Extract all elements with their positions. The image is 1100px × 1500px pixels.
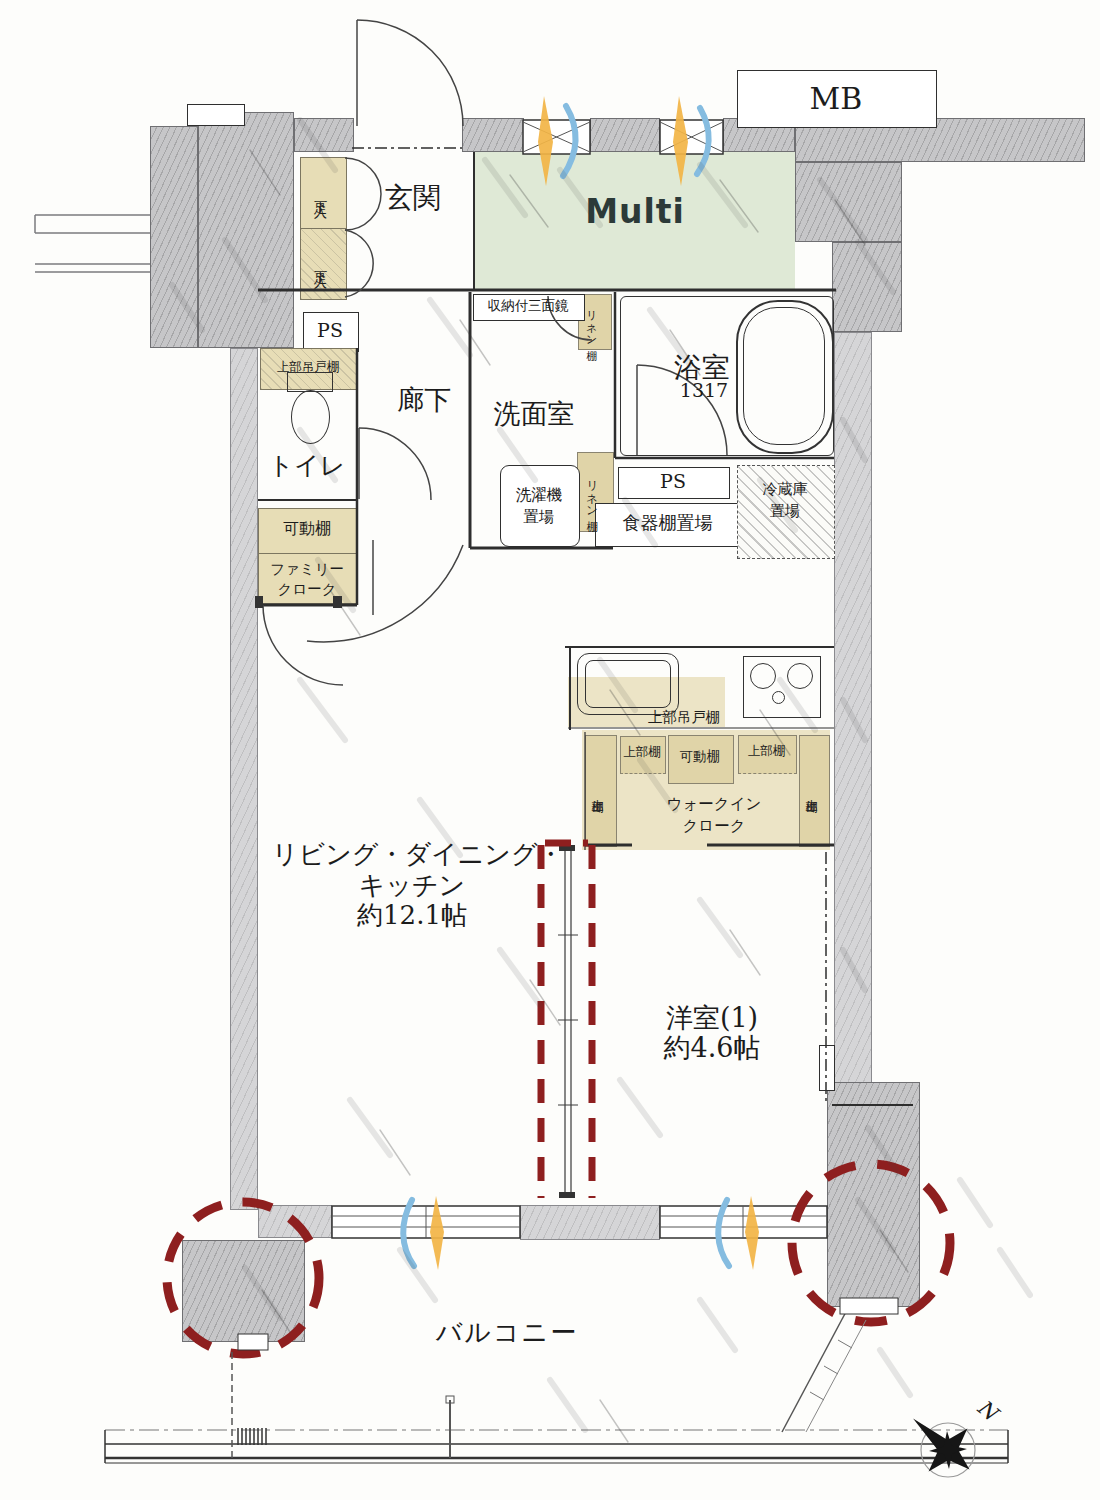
wall-left-lower — [230, 348, 258, 1210]
wall-left-upper — [198, 112, 294, 348]
label-shoe-lower: 下足入 — [312, 233, 327, 295]
toilet-bowl — [291, 390, 330, 444]
stove-burner-right — [787, 663, 813, 689]
compass-north-label: N — [968, 1391, 1006, 1429]
room-label-ldk-3: 約12.1帖 — [272, 901, 552, 931]
wall-column-narrow — [832, 242, 902, 332]
toilet-tank — [287, 372, 333, 392]
wall-bottom-mid-seg — [520, 1205, 660, 1240]
wall-top-entrance — [294, 118, 354, 152]
room-label-washroom: 洗面室 — [464, 398, 604, 429]
label-laundry-1: 洗濯機 — [500, 487, 578, 505]
room-label-ldk-1: リビング・ダイニング・ — [272, 840, 552, 870]
pillar-bottom-left — [182, 1240, 305, 1342]
wall-bottom-left-seg — [258, 1205, 332, 1238]
left-boundary-lines — [35, 215, 150, 272]
label-ps-center: PS — [618, 471, 728, 493]
room-label-hallway: 廊下 — [369, 384, 479, 415]
label-movable-shelf-left: 可動棚 — [258, 520, 356, 538]
sliding-partition — [558, 845, 578, 1198]
room-label-western-1: 洋室(1) — [622, 1002, 802, 1033]
wall-top-between-windows — [590, 118, 660, 152]
mb-label: MB — [786, 82, 886, 117]
daylight-icon — [430, 1196, 444, 1270]
airflow-icon — [718, 1200, 729, 1266]
label-upper-shelf-b: 上部棚 — [738, 744, 795, 758]
room-label-ldk-2: キッチン — [272, 871, 552, 901]
label-ps-left: PS — [303, 320, 357, 342]
label-upper-shelf-left: 上部棚 — [590, 744, 604, 836]
wall-right — [834, 332, 872, 1092]
label-hanging-cabinet-left: 上部吊戸棚 — [260, 360, 356, 374]
daylight-icon — [745, 1196, 759, 1270]
room-label-balcony: バルコニー — [407, 1318, 607, 1348]
label-movable-shelf-wic: 可動棚 — [668, 749, 732, 765]
label-bath-size: 1317 — [654, 380, 754, 402]
label-upper-shelf-right: 上部棚 — [804, 744, 818, 836]
label-kitchen-hanging: 上部吊戸棚 — [614, 709, 754, 726]
laundry-space — [500, 465, 580, 547]
label-fridge-2: 置場 — [737, 503, 833, 520]
room-label-toilet: トイレ — [257, 452, 357, 481]
wall-left-outer-step — [150, 126, 198, 348]
label-upper-shelf-a: 上部棚 — [620, 745, 664, 759]
wall-top-segment — [462, 118, 524, 152]
stove-burner-left — [750, 663, 776, 689]
room-label-multi: Multi — [520, 193, 750, 231]
label-wic-1: ウォークイン — [634, 796, 794, 814]
kitchen-sink-inner — [585, 660, 671, 708]
label-dish-shelf: 食器棚置場 — [595, 513, 740, 534]
pillar-bottom-right — [827, 1082, 920, 1307]
label-wic-2: クローク — [634, 818, 794, 836]
side-window — [819, 1045, 835, 1091]
interior-walls — [258, 148, 913, 1105]
airflow-icon — [403, 1200, 414, 1266]
stove-knob — [772, 691, 785, 704]
room-label-genkan: 玄関 — [353, 182, 473, 214]
label-family-1: ファミリー — [258, 561, 356, 578]
wall-column-wide — [795, 162, 902, 242]
floor-plan: MB Multi 玄関 下足入 下足入 PS 上部吊戸棚 トイレ 廊下 洗面室 … — [0, 0, 1100, 1500]
label-mirror-cabinet: 収納付三面鏡 — [473, 298, 583, 314]
label-fridge-1: 冷蔵庫 — [737, 481, 833, 498]
label-linen-top: リネン棚 — [584, 297, 597, 347]
label-laundry-2: 置場 — [500, 509, 578, 527]
label-family-2: クローク — [258, 581, 356, 598]
wall-top-small-box — [187, 104, 245, 126]
room-label-western-2: 約4.6帖 — [622, 1032, 802, 1063]
label-shoe-upper: 下足入 — [312, 163, 327, 225]
